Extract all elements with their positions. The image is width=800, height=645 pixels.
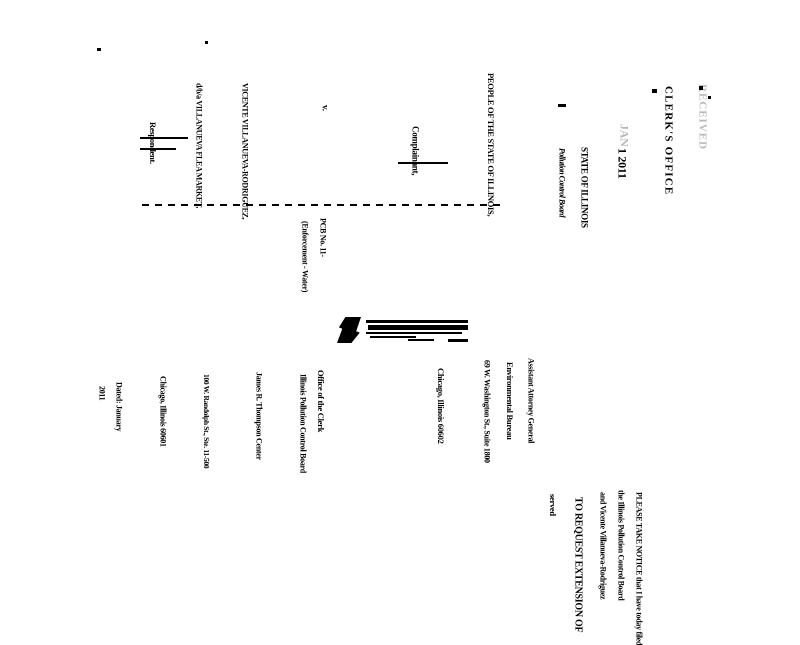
caption-complainant-name: PEOPLE OF THE STATE OF ILLINOIS,: [486, 73, 495, 216]
clerk-address-line-7: 2011: [97, 386, 105, 400]
notice-line-5: served: [548, 494, 557, 516]
scan-speck-5: [97, 48, 101, 51]
caption-respondent-label: Respondent.: [148, 122, 157, 164]
stamp-date-line: 1 2011: [616, 148, 629, 179]
caption-respondent-name: VICENTE VILLANUEVA-RODRIGUEZ,: [240, 83, 248, 219]
signature-underline-1: [366, 320, 468, 323]
clerk-address-line-6: Dated: January: [114, 382, 122, 431]
caption-complainant-label: Complainant,: [410, 126, 419, 175]
signature-mark: [337, 317, 361, 343]
scan-speck-2: [699, 86, 703, 90]
attorney-address-line-1: Assistant Attorney General: [526, 358, 534, 443]
notice-line-2: the Illinois Pollution Control Board: [616, 490, 624, 600]
case-category: (Enforcement - Water): [300, 221, 308, 292]
notice-line-3: and Vicente Villanueva-Rodriguez: [598, 492, 606, 599]
scan-streak-2: [140, 148, 176, 150]
caption-separator-dashes: [142, 204, 502, 206]
attorney-address-line-3: 69 W. Washington St., Suite 1800: [482, 360, 490, 463]
scan-speck-3: [708, 96, 711, 99]
clerk-address-line-4: 100 W. Randolph St., Ste. 11-500: [202, 374, 210, 468]
signature-underline-5: [408, 339, 434, 341]
signature-underline-4: [370, 336, 416, 338]
caption-respondent-dba: d/b/a VILLANUEVA FLEA MARKET,: [194, 83, 202, 208]
stamp-board-line: Pollution Control Board: [557, 148, 565, 217]
stamp-state-line: STATE OF ILLINOIS: [579, 147, 588, 228]
signature-underline-3: [366, 332, 462, 334]
stamp-clerks-office-line: CLERK'S OFFICE: [662, 86, 674, 195]
caption-versus: v.: [320, 105, 329, 111]
signature-underline-2: [368, 325, 468, 330]
clerk-address-line-5: Chicago, Illinois 60601: [158, 376, 166, 447]
notice-line-4: TO REQUEST EXTENSION OF: [572, 497, 583, 632]
scan-speck-6: [205, 41, 208, 44]
attorney-address-line-2: Environmental Bureau: [505, 362, 514, 440]
scan-streak-3: [398, 162, 448, 164]
scan-speck-4: [558, 104, 566, 107]
signature-underline-6: [448, 339, 468, 342]
clerk-address-line-1: Office of the Clerk: [316, 370, 325, 432]
stamp-received-line: RECEIVED: [696, 84, 708, 150]
attorney-address-line-4: Chicago, Illinois 60602: [436, 368, 445, 444]
notice-line-1: PLEASE TAKE NOTICE that I have today fil…: [634, 492, 642, 645]
clerk-address-line-2: Illinois Pollution Control Board: [298, 374, 306, 473]
scan-speck-1: [652, 89, 657, 93]
scan-streak-1: [140, 137, 188, 139]
stamp-date-month: JAN: [618, 124, 631, 146]
case-number: PCB No. 11-: [318, 218, 326, 257]
clerk-address-line-3: James R. Thompson Center: [254, 372, 262, 460]
